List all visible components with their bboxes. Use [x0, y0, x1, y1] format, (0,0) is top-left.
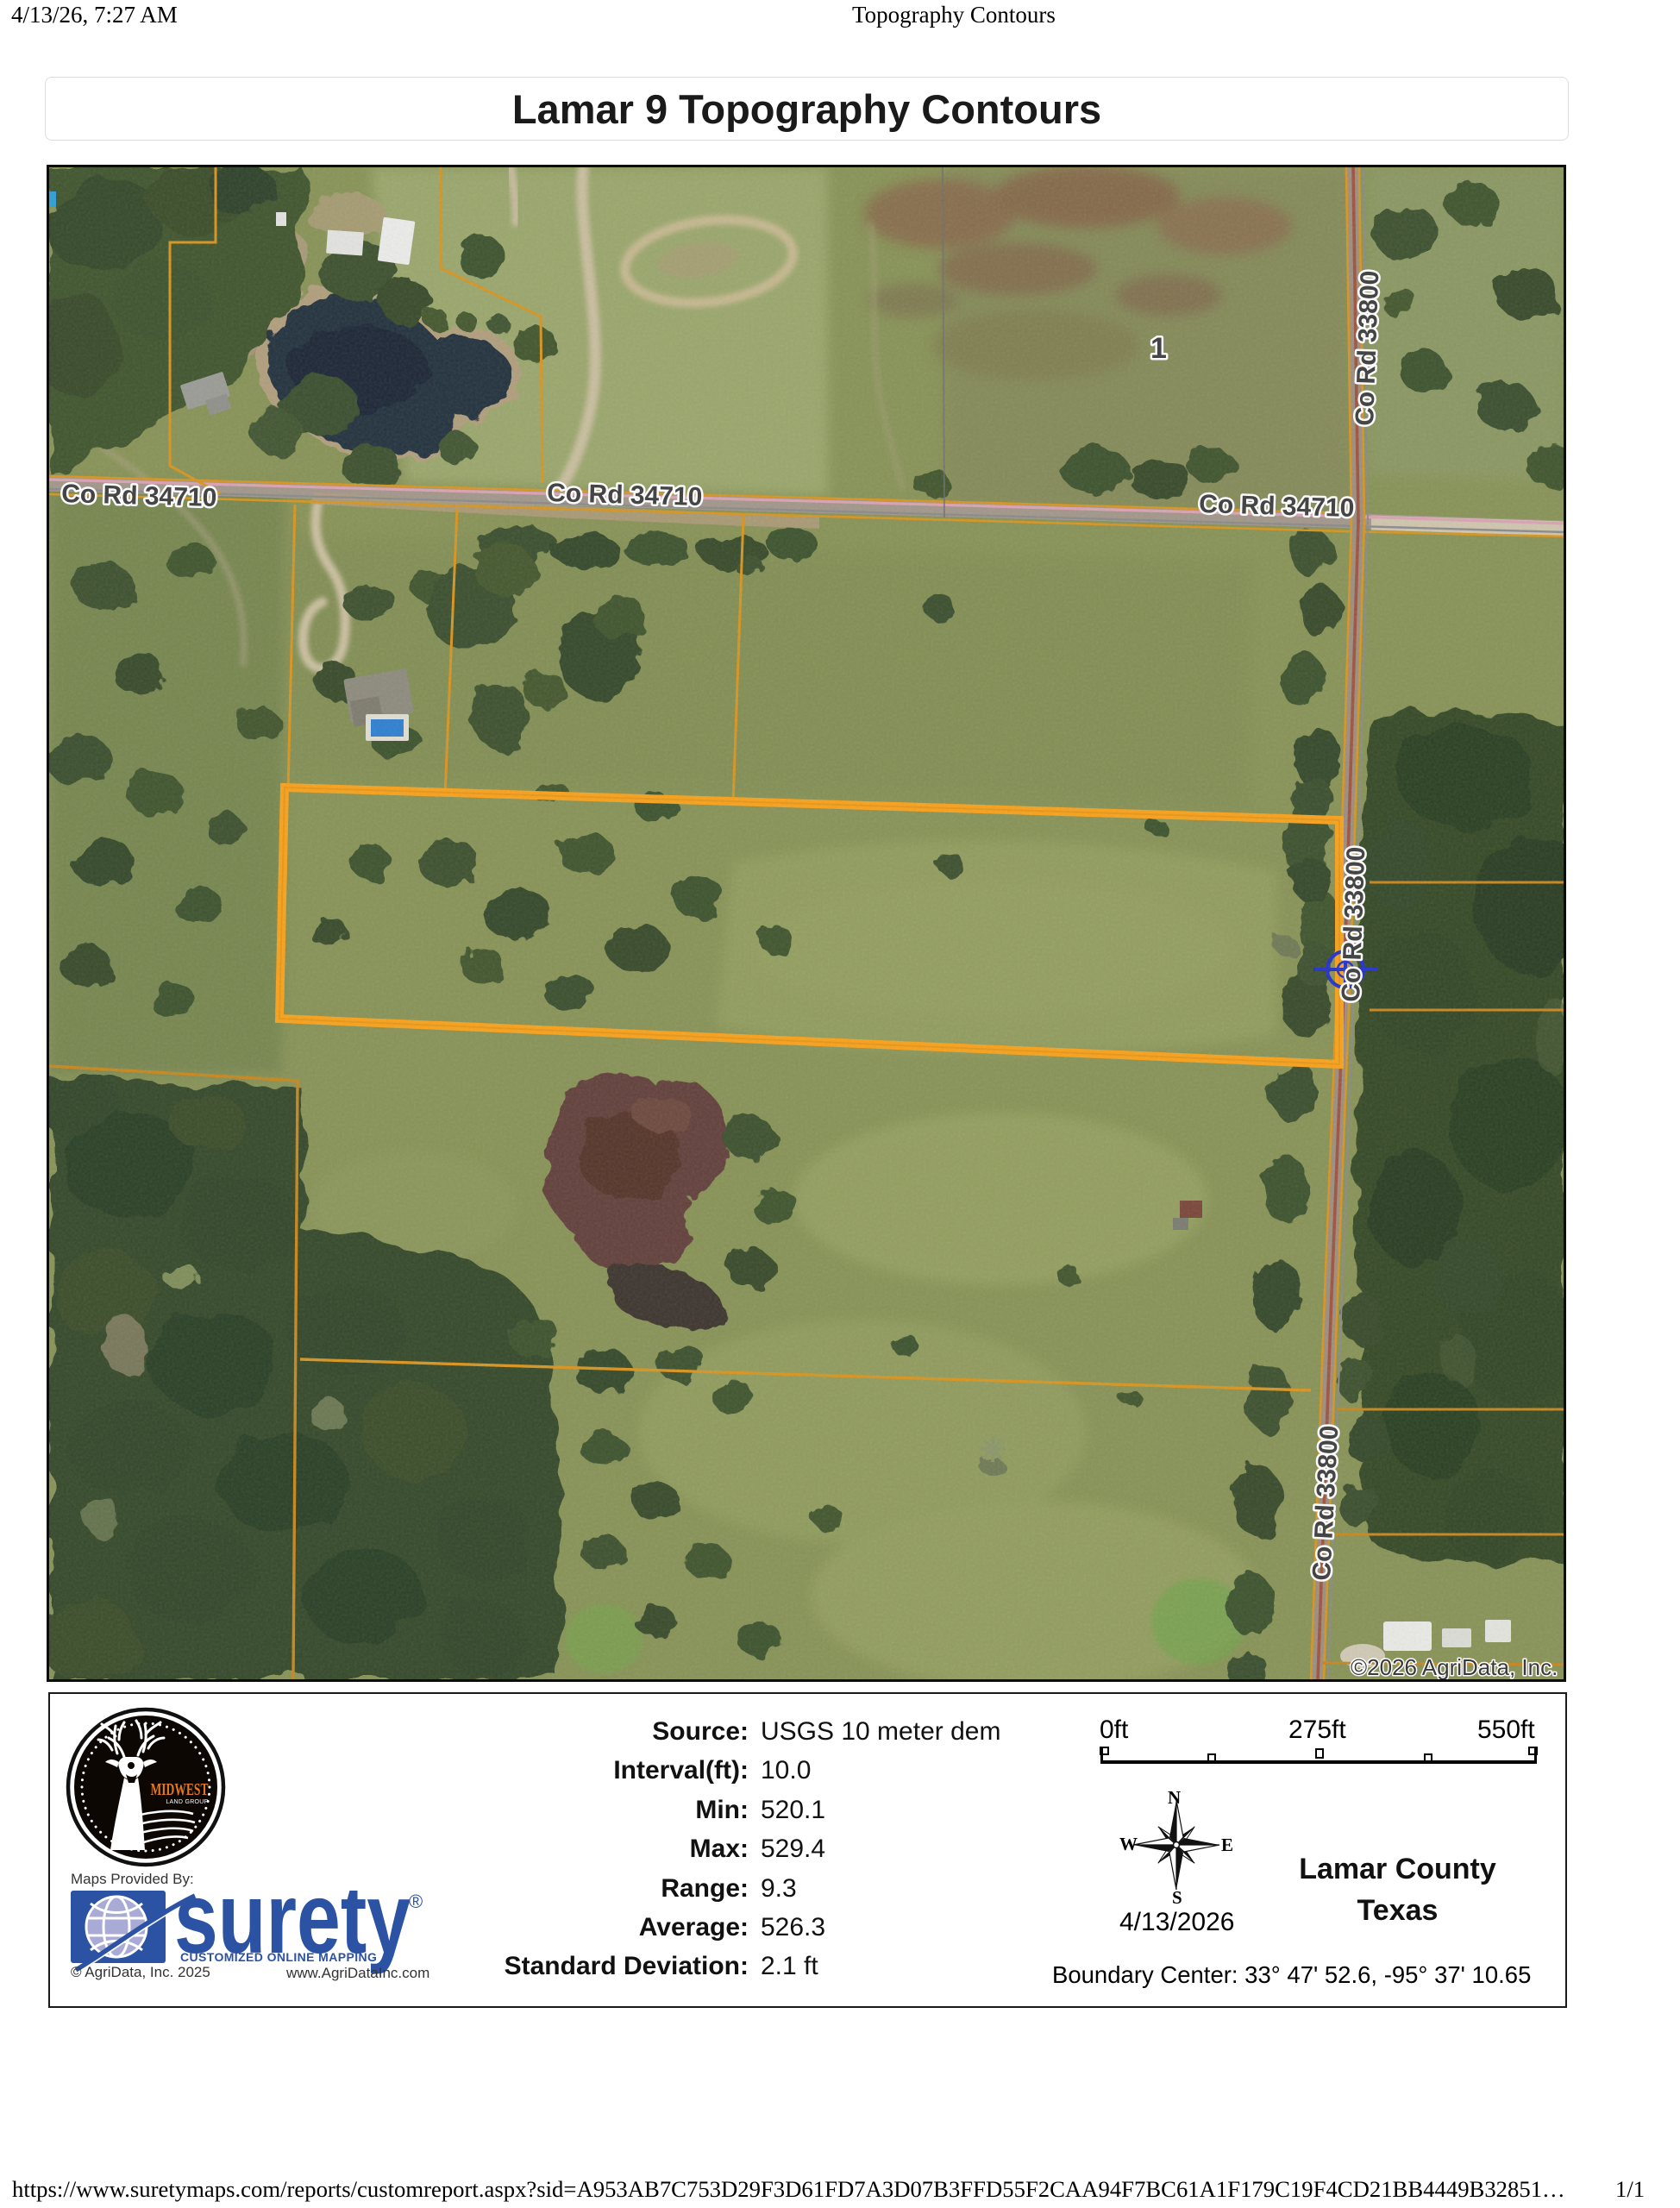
svg-text:©2026 AgriData, Inc.: ©2026 AgriData, Inc. — [1351, 1654, 1558, 1679]
svg-text:MIDWEST: MIDWEST — [151, 1780, 209, 1799]
svg-text:LAND GROUP: LAND GROUP — [166, 1799, 208, 1805]
